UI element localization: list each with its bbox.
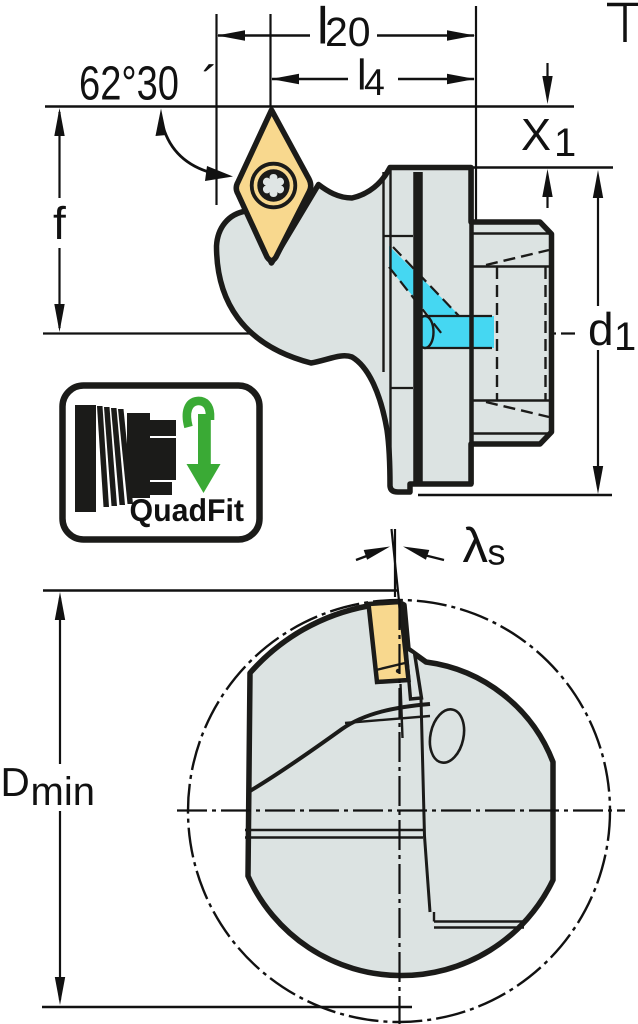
svg-text:QuadFit: QuadFit (130, 492, 245, 528)
svg-text:λ: λ (463, 519, 489, 573)
svg-text:min: min (31, 770, 95, 814)
svg-text:s: s (488, 532, 506, 573)
svg-text:1: 1 (614, 315, 636, 359)
svg-text:1: 1 (554, 121, 576, 165)
svg-text:62°30: 62°30 (79, 58, 179, 111)
svg-text:4: 4 (364, 61, 385, 103)
svg-text:´: ´ (202, 58, 218, 111)
svg-text:f: f (53, 197, 66, 249)
svg-text:d: d (588, 303, 614, 355)
svg-text:X: X (521, 109, 551, 160)
svg-text:20: 20 (325, 9, 371, 55)
svg-text:D: D (1, 759, 30, 805)
